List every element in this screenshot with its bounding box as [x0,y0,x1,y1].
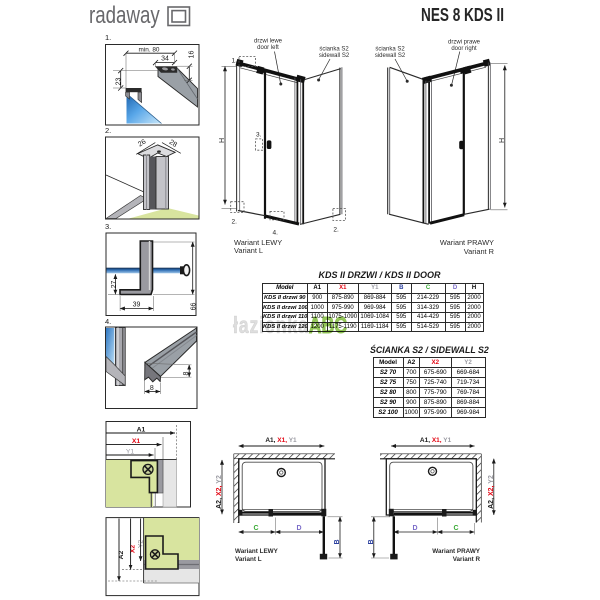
svg-text:X1: X1 [132,438,141,445]
svg-text:drzwi lewe: drzwi lewe [254,39,283,45]
svg-text:min. 80: min. 80 [139,47,160,54]
svg-text:34: 34 [161,56,169,63]
svg-text:A1, X1, Y1: A1, X1, Y1 [265,437,297,444]
svg-text:door right: door right [451,46,477,52]
svg-text:H: H [219,138,226,143]
svg-text:16: 16 [189,51,196,59]
svg-text:A2, X2, Y2: A2, X2, Y2 [488,475,495,509]
svg-text:A1, X1, Y1: A1, X1, Y1 [420,437,452,444]
svg-text:27: 27 [111,281,118,289]
svg-text:B: B [368,539,375,544]
svg-text:C: C [453,525,458,532]
svg-text:2.: 2. [333,227,339,234]
svg-text:D: D [412,525,417,532]
svg-text:ścianka S2: ścianka S2 [319,47,349,53]
svg-text:3.: 3. [105,222,111,231]
svg-text:3.: 3. [256,132,262,139]
svg-text:4.: 4. [105,317,111,326]
svg-text:sidewall S2: sidewall S2 [375,53,406,59]
svg-text:A2, X2, Y2: A2, X2, Y2 [216,475,223,509]
svg-text:2.: 2. [105,126,111,135]
svg-text:66: 66 [191,303,198,311]
svg-text:8: 8 [150,385,154,392]
svg-text:2.: 2. [232,219,238,226]
svg-text:D: D [296,525,301,532]
svg-text:1.: 1. [105,33,111,42]
svg-text:C: C [253,525,258,532]
svg-text:B: B [334,539,341,544]
svg-text:23: 23 [116,78,123,86]
svg-text:H: H [499,138,506,143]
svg-text:door left: door left [257,45,279,51]
svg-text:drzwi prawe: drzwi prawe [448,40,481,46]
svg-text:sidewall S2: sidewall S2 [319,53,350,59]
svg-text:4.: 4. [273,230,279,237]
svg-text:Y1: Y1 [126,448,135,455]
svg-text:39: 39 [133,302,141,309]
svg-text:1.: 1. [232,58,238,65]
svg-text:ścianka S2: ścianka S2 [375,47,405,53]
svg-text:A1: A1 [137,427,146,434]
